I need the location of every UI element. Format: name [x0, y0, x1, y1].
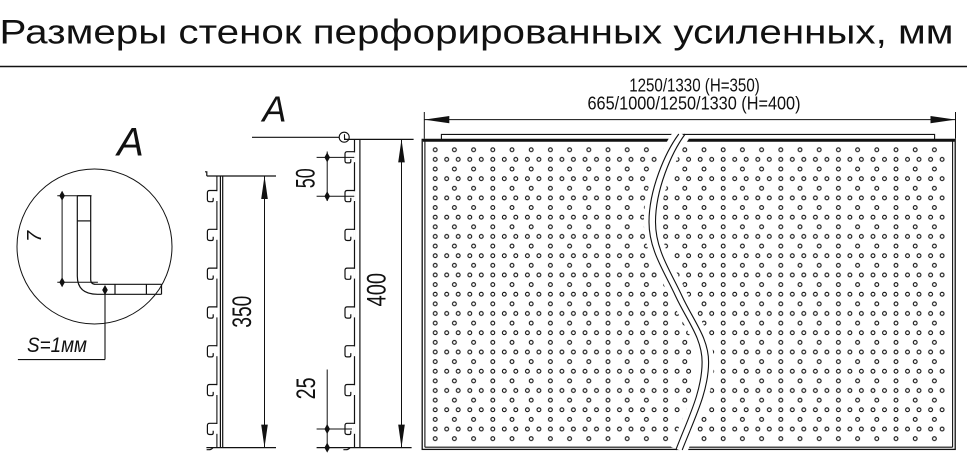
- svg-text:1250/1330 (H=350): 1250/1330 (H=350): [629, 76, 760, 96]
- svg-text:50: 50: [291, 168, 321, 188]
- svg-text:400: 400: [362, 273, 392, 307]
- svg-text:S=1мм: S=1мм: [27, 334, 87, 357]
- svg-text:350: 350: [227, 296, 257, 328]
- svg-text:665/1000/1250/1330 (H=400): 665/1000/1250/1330 (H=400): [588, 94, 801, 114]
- svg-text:Размеры стенок перфорированных: Размеры стенок перфорированных усиленных…: [0, 14, 954, 52]
- svg-text:7: 7: [24, 230, 46, 242]
- svg-text:25: 25: [291, 377, 321, 399]
- svg-text:A: A: [260, 89, 286, 130]
- svg-text:A: A: [115, 121, 144, 165]
